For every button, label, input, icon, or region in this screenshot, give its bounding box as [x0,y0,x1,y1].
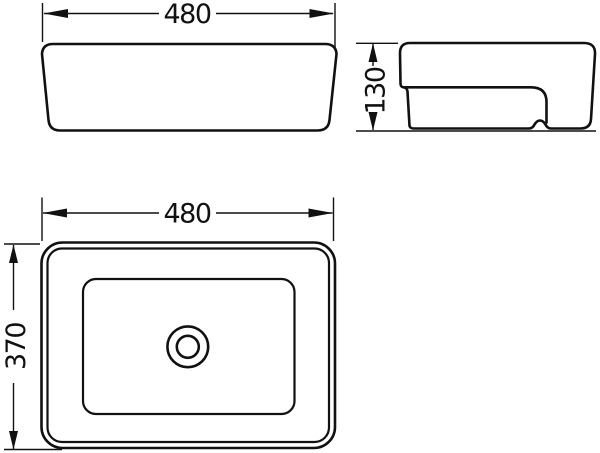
plan-width-dimension: 480 [42,198,334,242]
arrow-left-icon [44,9,69,18]
front-view: 480 [42,0,337,131]
plan-width-label: 480 [163,199,210,230]
drawing-canvas: 480 130 [0,0,600,453]
arrow-right-icon [309,209,334,218]
plan-outer-rim [42,243,336,449]
front-width-dimension: 480 [43,0,336,50]
arrow-up-icon [369,43,378,62]
arrow-right-icon [310,9,335,18]
plan-depth-label: 370 [1,323,32,370]
front-view-outline [42,44,337,131]
front-width-label: 480 [163,0,210,30]
side-view: 130 [356,43,596,131]
side-height-label: 130 [361,67,392,114]
arrow-left-icon [43,209,68,218]
side-view-outline [400,43,595,129]
plan-view: 480 370 [1,198,335,450]
arrow-down-icon [9,431,18,450]
basin-technical-drawing: 480 130 [0,0,600,453]
arrow-up-icon [9,245,18,264]
